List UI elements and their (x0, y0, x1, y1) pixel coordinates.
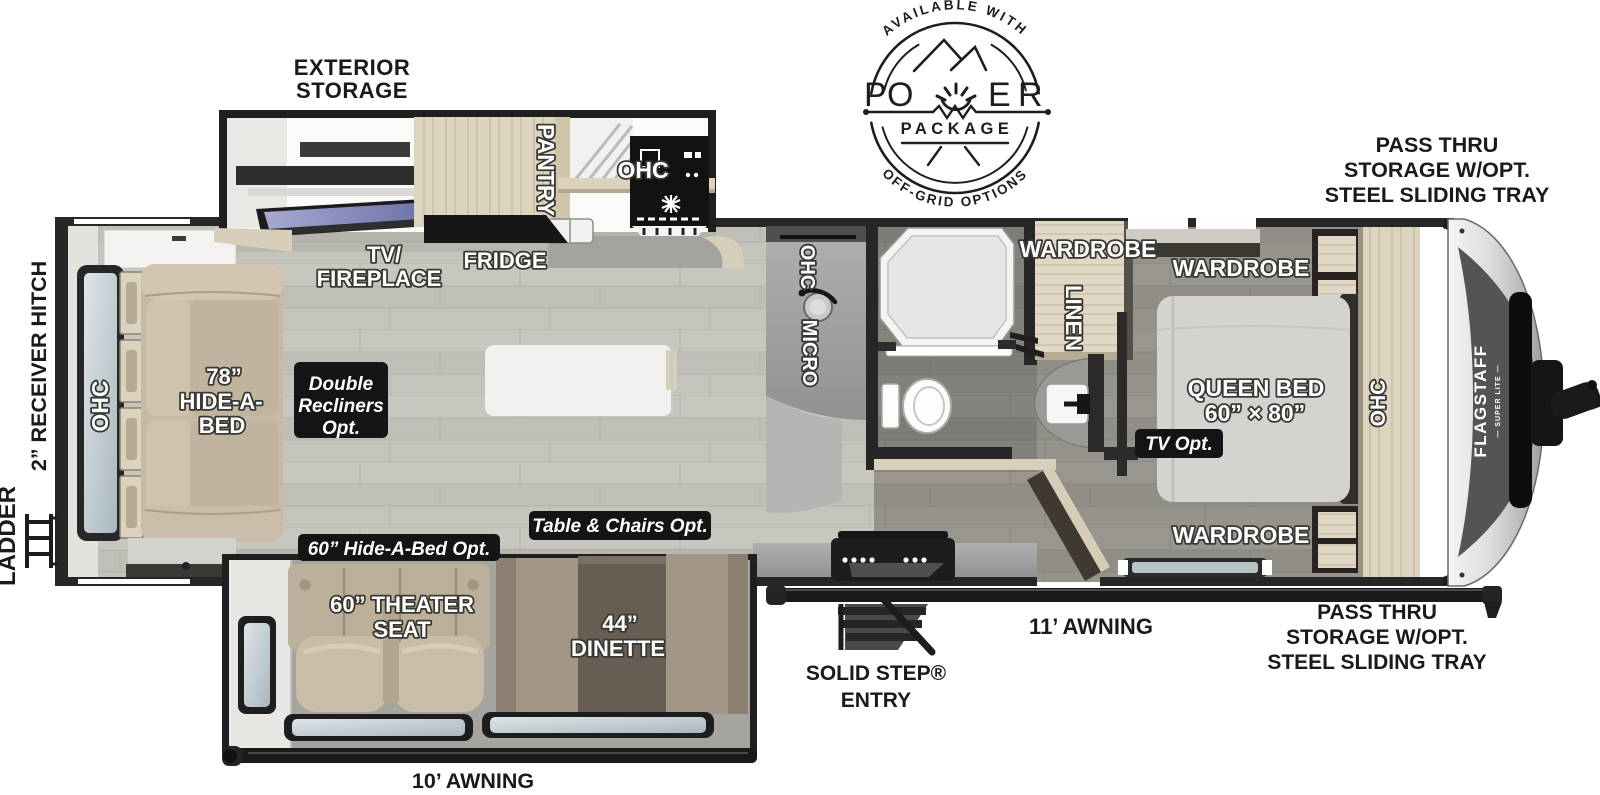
svg-text:PANTRY: PANTRY (533, 124, 559, 216)
svg-text:— SUPER LITE —: — SUPER LITE — (1495, 364, 1502, 437)
svg-text:WARDROBE: WARDROBE (1173, 255, 1310, 281)
svg-text:PASS THRU: PASS THRU (1376, 133, 1499, 157)
svg-text:60” × 80”: 60” × 80” (1205, 400, 1305, 426)
svg-text:PASS THRU: PASS THRU (1317, 601, 1437, 624)
svg-text:44”: 44” (602, 611, 637, 636)
svg-text:SOLID STEP®: SOLID STEP® (806, 662, 947, 685)
svg-text:STORAGE: STORAGE (296, 78, 408, 103)
svg-text:PACKAGE: PACKAGE (901, 120, 1014, 138)
svg-text:2” RECEIVER HITCH: 2” RECEIVER HITCH (27, 261, 51, 471)
svg-text:QUEEN BED: QUEEN BED (1188, 375, 1325, 401)
svg-text:Double: Double (309, 374, 374, 395)
svg-text:DINETTE: DINETTE (571, 636, 665, 661)
svg-text:10’ AWNING: 10’ AWNING (412, 769, 534, 793)
svg-text:BED: BED (199, 413, 245, 438)
svg-text:O: O (887, 76, 913, 114)
svg-text:WARDROBE: WARDROBE (1173, 522, 1310, 548)
svg-text:60” Hide-A-Bed Opt.: 60” Hide-A-Bed Opt. (308, 539, 491, 560)
svg-text:60” THEATER: 60” THEATER (330, 592, 474, 617)
svg-text:STORAGE W/OPT.: STORAGE W/OPT. (1286, 626, 1468, 649)
svg-text:Opt.: Opt. (322, 418, 360, 439)
svg-text:Recliners: Recliners (298, 396, 384, 417)
svg-text:STORAGE W/OPT.: STORAGE W/OPT. (1344, 158, 1530, 182)
svg-text:STEEL SLIDING TRAY: STEEL SLIDING TRAY (1325, 183, 1550, 207)
svg-text:STEEL SLIDING TRAY: STEEL SLIDING TRAY (1267, 651, 1486, 674)
svg-text:OHC: OHC (796, 245, 818, 289)
svg-text:OHC: OHC (617, 157, 668, 183)
svg-text:SEAT: SEAT (373, 617, 431, 642)
svg-text:11’ AWNING: 11’ AWNING (1029, 614, 1153, 639)
svg-text:FRIDGE: FRIDGE (463, 248, 546, 273)
svg-text:Table & Chairs Opt.: Table & Chairs Opt. (532, 516, 708, 537)
svg-text:FIREPLACE: FIREPLACE (317, 266, 442, 291)
svg-text:FLAGSTAFF: FLAGSTAFF (1471, 344, 1490, 457)
svg-text:P: P (864, 76, 887, 114)
svg-text:TV Opt.: TV Opt. (1145, 434, 1213, 455)
svg-text:OHC: OHC (87, 380, 113, 431)
svg-text:LINEN: LINEN (1061, 285, 1086, 351)
svg-text:WARDROBE: WARDROBE (1020, 236, 1157, 262)
svg-text:ENTRY: ENTRY (841, 689, 911, 712)
svg-text:R: R (1018, 76, 1043, 114)
svg-text:MICRO: MICRO (798, 320, 820, 387)
svg-text:OHC: OHC (1367, 380, 1390, 427)
svg-text:TV/: TV/ (367, 242, 401, 267)
svg-text:LADDER: LADDER (0, 486, 21, 586)
svg-text:78”: 78” (206, 364, 241, 389)
svg-text:HIDE-A-: HIDE-A- (179, 389, 262, 414)
svg-text:E: E (988, 76, 1011, 114)
svg-text:EXTERIOR: EXTERIOR (294, 55, 410, 80)
